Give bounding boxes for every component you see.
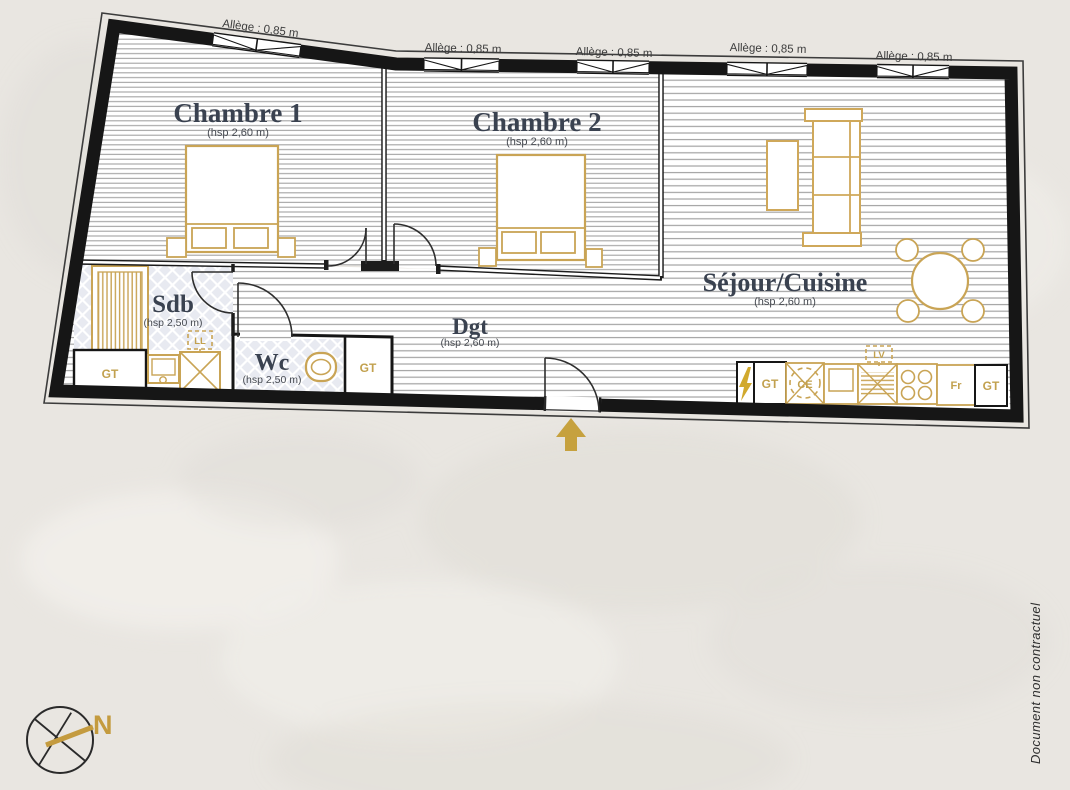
gt-closet-kitchen-left: GT — [754, 362, 786, 404]
wc-ceiling: (hsp 2,50 m) — [243, 374, 302, 386]
bathroom-ceiling: (hsp 2,50 m) — [144, 317, 203, 329]
wc-title: Wc — [255, 350, 290, 376]
compass-icon: N — [27, 707, 113, 773]
window-2 — [424, 58, 499, 72]
footer-note: Document non contractuel — [1028, 602, 1043, 764]
compass-north-label: N — [93, 710, 113, 740]
degagement-ceiling: (hsp 2,60 m) — [441, 337, 500, 349]
electrical-panel — [737, 362, 754, 404]
bathroom-title: Sdb — [152, 291, 194, 318]
cooktop — [897, 364, 937, 404]
sejour-title: Séjour/Cuisine — [703, 268, 868, 297]
entrance-gap — [544, 396, 601, 412]
chambre2-title: Chambre 2 — [472, 107, 601, 137]
water-heater: CE — [786, 363, 824, 404]
fr-label: Fr — [951, 380, 963, 392]
degagement-title: Dgt — [452, 314, 488, 339]
bed-chambre1 — [167, 146, 295, 257]
shower-tray — [180, 352, 220, 392]
gt-label-kitchen-left: GT — [762, 377, 779, 391]
radiator — [92, 266, 148, 356]
bed-chambre2 — [479, 155, 602, 267]
vanity-sink — [148, 355, 179, 383]
window-label-2: Allège : 0,85 m — [425, 42, 502, 56]
window-3 — [577, 60, 649, 74]
window-5 — [877, 65, 949, 79]
kitchen-sink — [824, 364, 858, 404]
window-4 — [727, 62, 807, 76]
gt-label-kitchen-right: GT — [983, 379, 1000, 393]
chambre1-title: Chambre 1 — [173, 98, 302, 128]
gt-label-bathroom: GT — [102, 367, 119, 381]
tv-stand — [767, 141, 798, 210]
gt-closet-kitchen-right: GT — [975, 365, 1007, 406]
window-label-5: Allège : 0,85 m — [876, 50, 953, 64]
floorplan-canvas: GT LL Sdb (hsp 2,50 m) — [0, 0, 1070, 790]
ll-label: LL — [194, 336, 206, 347]
floorplan-page: GT LL Sdb (hsp 2,50 m) — [0, 0, 1070, 790]
window-label-3: Allège : 0,85 m — [576, 46, 653, 60]
window-label-4: Allège : 0,85 m — [730, 42, 807, 56]
lv-label: LV — [873, 350, 885, 361]
gt-label-wc: GT — [360, 361, 377, 375]
fridge: Fr — [937, 365, 975, 405]
sejour-ceiling: (hsp 2,60 m) — [754, 296, 816, 308]
chambre1-ceiling: (hsp 2,60 m) — [207, 127, 269, 139]
ce-label: CE — [797, 379, 812, 391]
chambre2-ceiling: (hsp 2,60 m) — [506, 136, 568, 148]
toilet — [306, 353, 336, 381]
wc-door-gap — [240, 330, 291, 341]
bathroom-block: GT LL Sdb (hsp 2,50 m) — [74, 262, 233, 398]
